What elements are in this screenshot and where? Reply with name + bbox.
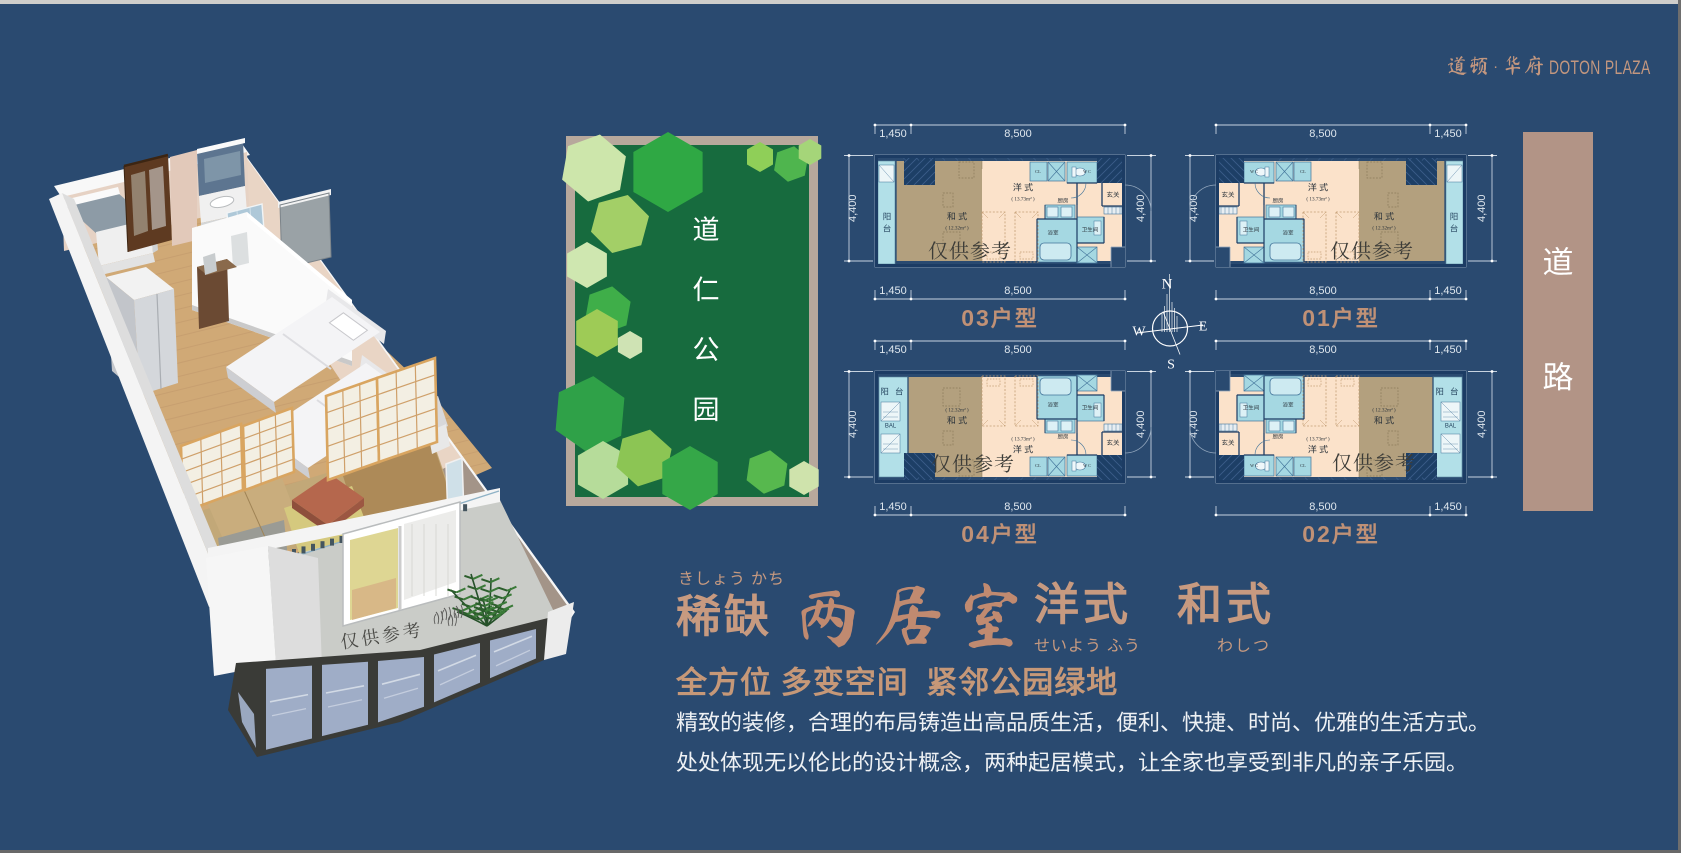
svg-text:( 12.32m² ): ( 12.32m² ) <box>945 224 969 231</box>
svg-text:( 13.73m² ): ( 13.73m² ) <box>1306 195 1330 202</box>
svg-text:( 13.73m² ): ( 13.73m² ) <box>1011 435 1035 442</box>
svg-text:道: 道 <box>693 208 720 247</box>
svg-text:台: 台 <box>883 222 892 234</box>
svg-text:玄关: 玄关 <box>1222 437 1236 447</box>
svg-text:BAL: BAL <box>885 424 897 430</box>
svg-text:玄关: 玄关 <box>1107 189 1121 199</box>
svg-text:玄关: 玄关 <box>1222 189 1236 199</box>
svg-text:厨房: 厨房 <box>1057 197 1069 205</box>
svg-text:玄关: 玄关 <box>1107 437 1121 447</box>
svg-text:路: 路 <box>1543 352 1574 397</box>
svg-text:03户型: 03户型 <box>961 301 1039 333</box>
svg-text:1,450: 1,450 <box>1434 285 1462 297</box>
svg-text:( 13.73m² ): ( 13.73m² ) <box>1306 435 1330 442</box>
svg-text:1,450: 1,450 <box>1434 128 1462 140</box>
svg-text:仅供参考: 仅供参考 <box>1332 447 1416 476</box>
svg-text:1,450: 1,450 <box>1434 344 1462 356</box>
svg-text:浴室: 浴室 <box>1047 229 1059 237</box>
svg-text:卫生间: 卫生间 <box>1082 226 1099 234</box>
svg-text:台: 台 <box>1450 222 1459 234</box>
svg-text:4,400: 4,400 <box>847 410 859 438</box>
svg-text:1,450: 1,450 <box>879 344 907 356</box>
svg-text:CL: CL <box>1035 169 1041 175</box>
svg-text:8,500: 8,500 <box>1309 128 1337 140</box>
svg-text:W C: W C <box>1083 169 1091 175</box>
svg-text:( 12.32m² ): ( 12.32m² ) <box>1372 224 1396 231</box>
svg-text:仁: 仁 <box>693 268 720 307</box>
svg-text:E: E <box>1199 320 1208 335</box>
svg-text:8,500: 8,500 <box>1004 344 1032 356</box>
svg-text:BAL: BAL <box>1445 424 1457 430</box>
svg-text:浴室: 浴室 <box>1282 229 1294 237</box>
svg-text:洋 式: 洋 式 <box>1013 442 1033 455</box>
svg-text:04户型: 04户型 <box>961 517 1039 549</box>
svg-text:阳: 阳 <box>883 210 892 222</box>
svg-text:4,400: 4,400 <box>1476 410 1488 438</box>
svg-text:N: N <box>1162 277 1173 293</box>
svg-text:4,400: 4,400 <box>1135 194 1147 222</box>
svg-text:道: 道 <box>1543 237 1574 282</box>
svg-text:1,450: 1,450 <box>879 501 907 513</box>
svg-text:1,450: 1,450 <box>879 128 907 140</box>
svg-text:8,500: 8,500 <box>1309 501 1337 513</box>
svg-text:CL: CL <box>1035 463 1041 469</box>
svg-text:洋 式: 洋 式 <box>1013 180 1033 193</box>
svg-text:( 13.73m² ): ( 13.73m² ) <box>1011 195 1035 202</box>
svg-text:W C: W C <box>1250 463 1258 469</box>
svg-text:卫生间: 卫生间 <box>1243 226 1260 234</box>
svg-text:( 12.32m² ): ( 12.32m² ) <box>1372 406 1396 413</box>
svg-text:和 式: 和 式 <box>1374 209 1394 222</box>
svg-text:8,500: 8,500 <box>1004 285 1032 297</box>
svg-text:01户型: 01户型 <box>1302 301 1380 333</box>
svg-text:4,400: 4,400 <box>1476 194 1488 222</box>
svg-text:卫生间: 卫生间 <box>1082 404 1099 412</box>
svg-text:S: S <box>1167 358 1175 373</box>
svg-text:8,500: 8,500 <box>1004 128 1032 140</box>
svg-text:8,500: 8,500 <box>1004 501 1032 513</box>
svg-text:CL: CL <box>1300 463 1306 469</box>
svg-text:W: W <box>1132 325 1146 340</box>
svg-text:洋 式: 洋 式 <box>1308 442 1328 455</box>
svg-text:CL: CL <box>1300 169 1306 175</box>
svg-text:和 式: 和 式 <box>947 209 967 222</box>
svg-text:W C: W C <box>1083 463 1091 469</box>
svg-text:仅供参考: 仅供参考 <box>928 235 1012 264</box>
svg-text:8,500: 8,500 <box>1309 285 1337 297</box>
svg-text:4,400: 4,400 <box>1135 410 1147 438</box>
svg-text:W C: W C <box>1250 169 1258 175</box>
svg-text:浴室: 浴室 <box>1047 401 1059 409</box>
svg-text:8,500: 8,500 <box>1309 344 1337 356</box>
svg-text:公: 公 <box>693 328 720 367</box>
svg-text:( 12.32m² ): ( 12.32m² ) <box>945 406 969 413</box>
svg-text:园: 园 <box>693 388 720 427</box>
svg-text:仅供参考: 仅供参考 <box>1330 235 1414 264</box>
svg-text:4,400: 4,400 <box>1188 410 1200 438</box>
svg-text:浴室: 浴室 <box>1282 401 1294 409</box>
svg-text:02户型: 02户型 <box>1302 517 1380 549</box>
svg-text:阳: 阳 <box>1450 210 1459 222</box>
svg-text:厨房: 厨房 <box>1272 197 1284 205</box>
svg-text:4,400: 4,400 <box>847 194 859 222</box>
svg-text:1,450: 1,450 <box>879 285 907 297</box>
svg-text:厨房: 厨房 <box>1272 433 1284 441</box>
svg-text:洋 式: 洋 式 <box>1308 180 1328 193</box>
svg-text:卫生间: 卫生间 <box>1243 404 1260 412</box>
svg-text:和 式: 和 式 <box>947 413 967 426</box>
svg-text:仅供参考: 仅供参考 <box>931 448 1015 477</box>
svg-text:1,450: 1,450 <box>1434 501 1462 513</box>
svg-text:和 式: 和 式 <box>1374 413 1394 426</box>
svg-text:阳 台: 阳 台 <box>1435 385 1460 397</box>
svg-text:阳 台: 阳 台 <box>880 385 905 397</box>
svg-text:厨房: 厨房 <box>1057 433 1069 441</box>
